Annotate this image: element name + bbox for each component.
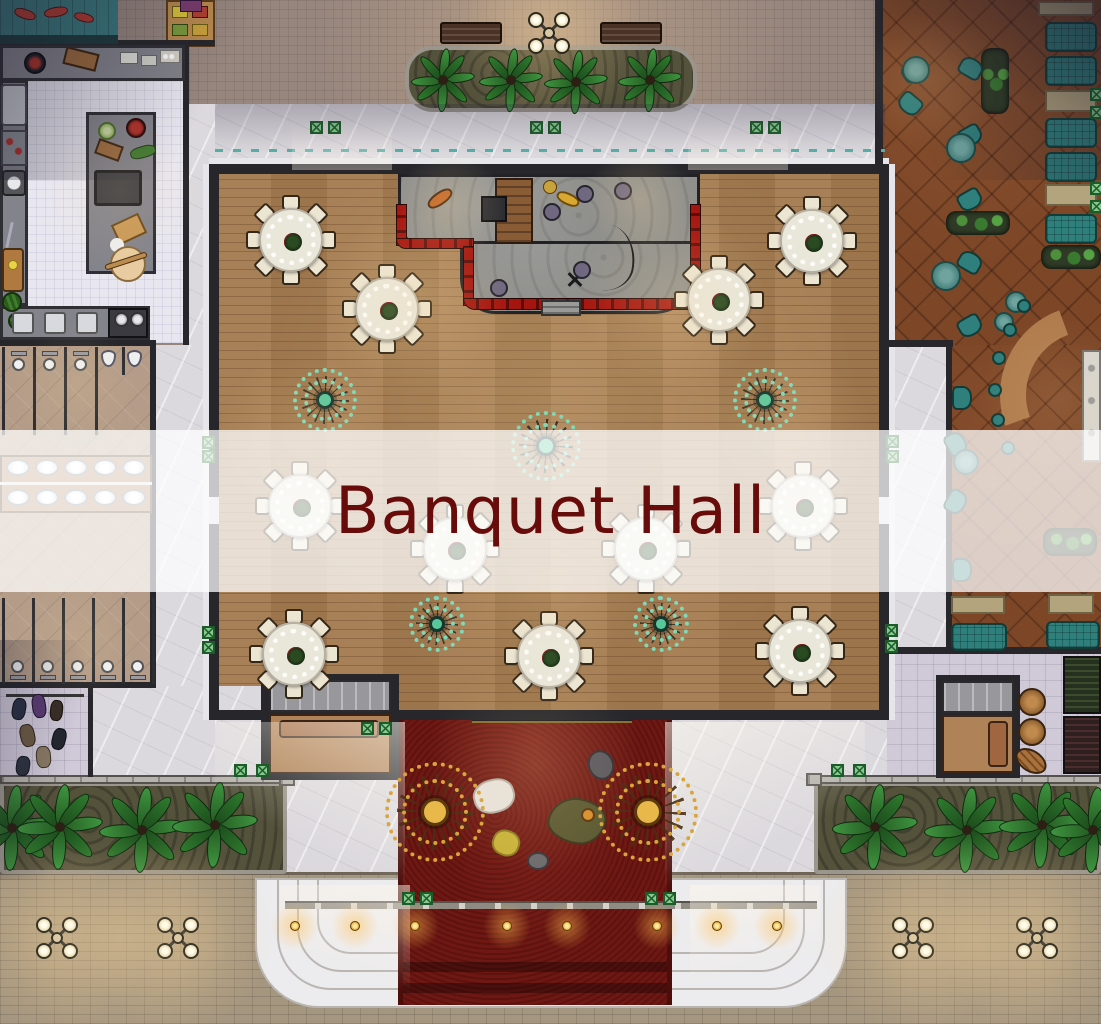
- tabletop: [517, 624, 581, 688]
- gold-medallion: [385, 762, 485, 862]
- patio-round-table: [931, 261, 961, 291]
- patio-planter: [1041, 245, 1101, 269]
- toilet-bowl: [12, 358, 25, 371]
- stall-divider: [32, 598, 35, 684]
- toilet: [42, 351, 58, 372]
- lamp-globe: [183, 917, 199, 933]
- banquet-table: [766, 195, 858, 287]
- barrel: [1018, 718, 1046, 746]
- street-lamp: [1015, 916, 1059, 960]
- palm-tree: [172, 782, 258, 868]
- lamp-globe: [36, 943, 52, 959]
- wall-cloak-right: [88, 688, 93, 777]
- street-lamp: [35, 916, 79, 960]
- side-table: [256, 764, 269, 777]
- toilet-bowl: [74, 358, 87, 371]
- lamp-globe: [1042, 917, 1058, 933]
- side-table: [379, 722, 392, 735]
- tabletop: [355, 277, 419, 341]
- toilet: [11, 351, 27, 372]
- stage-trim: [463, 298, 701, 310]
- sun-lounger: [1045, 118, 1097, 148]
- side-table: [885, 624, 898, 637]
- stall-divider: [92, 598, 95, 684]
- side-table: [645, 892, 658, 905]
- step-lantern: [652, 921, 662, 931]
- lamp-globe: [1016, 943, 1032, 959]
- lobby-cushion-orange: [581, 808, 595, 822]
- carpet-step-shadow: [403, 962, 667, 972]
- wine-rack: [1063, 656, 1101, 714]
- palm-trunk: [645, 75, 655, 85]
- step-lantern: [772, 921, 782, 931]
- toilet-tank: [40, 675, 56, 680]
- patio-sofa: [1046, 621, 1100, 649]
- crate-content: [172, 24, 188, 36]
- lobby-pouf-gray: [527, 852, 549, 870]
- stall-divider: [2, 598, 5, 684]
- palm-trunk: [137, 825, 147, 835]
- palm-tree: [924, 787, 1010, 873]
- banner-overlay: Banquet Hall: [0, 430, 1101, 592]
- palm-tree: [411, 48, 475, 112]
- speaker: [576, 185, 594, 203]
- patio-round-table: [946, 133, 976, 163]
- kitchen-sink: [44, 312, 66, 334]
- centerpiece: [712, 293, 730, 311]
- chandelier-medallion: [633, 596, 689, 652]
- mixer: [2, 170, 26, 196]
- centerpiece: [793, 644, 811, 662]
- side-table: [1090, 200, 1101, 213]
- coat-rack: [6, 694, 84, 697]
- sauce-pot: [126, 118, 146, 138]
- fence-top: [215, 149, 885, 152]
- speaker: [543, 203, 561, 221]
- toilet-tank: [70, 675, 86, 680]
- stall-divider: [122, 598, 125, 684]
- toilet-tank: [11, 351, 27, 356]
- toilet-bowl: [71, 660, 84, 673]
- wall-kitchen-right: [183, 45, 189, 345]
- lamp-globe: [157, 943, 173, 959]
- step-lantern: [502, 921, 512, 931]
- pot: [130, 312, 145, 327]
- side-table: [885, 640, 898, 653]
- lamp-globe: [183, 943, 199, 959]
- stall-divider: [33, 347, 36, 435]
- kitchen-pan: [24, 52, 46, 74]
- lamp-globe: [62, 943, 78, 959]
- patio-table: [1048, 594, 1094, 614]
- side-table: [530, 121, 543, 134]
- palm-trunk: [962, 825, 972, 835]
- flower-display: [180, 0, 202, 12]
- bar-stool: [1003, 323, 1017, 337]
- lemon: [8, 260, 18, 270]
- fridge: [1, 84, 27, 126]
- palm-tree: [17, 784, 103, 870]
- barrel: [1018, 688, 1046, 716]
- crate-content: [192, 24, 208, 36]
- side-table: [202, 641, 215, 654]
- toilet-tank: [73, 351, 89, 356]
- palm-tree: [544, 50, 608, 114]
- side-table: [234, 764, 247, 777]
- lamp-center: [543, 27, 555, 39]
- banquet-table: [503, 610, 595, 702]
- patio-table: [951, 596, 1005, 614]
- step-lantern: [410, 921, 420, 931]
- medallion-core: [429, 616, 445, 632]
- tabletop: [259, 208, 323, 272]
- tabletop: [687, 268, 751, 332]
- tabletop: [780, 209, 844, 273]
- medallion-core: [316, 391, 334, 409]
- side-table: [750, 121, 763, 134]
- sun-lounger: [1045, 56, 1097, 86]
- street-lamp: [156, 916, 200, 960]
- street-lamp: [891, 916, 935, 960]
- banquet-table: [245, 194, 337, 286]
- pot: [114, 312, 129, 327]
- wine-rack: [1063, 716, 1101, 774]
- palm-trunk: [1037, 820, 1047, 830]
- bar-stool: [988, 383, 1002, 397]
- lamp-globe: [157, 917, 173, 933]
- palm-tree: [479, 48, 543, 112]
- palm-trunk: [7, 823, 17, 833]
- cabbage: [98, 122, 116, 140]
- toilet-bowl: [41, 660, 54, 673]
- lamp-globe: [892, 917, 908, 933]
- lamp-globe: [1042, 943, 1058, 959]
- centerpiece: [542, 649, 560, 667]
- gold-medallion: [598, 762, 698, 862]
- side-table: [202, 626, 215, 639]
- lamp-globe: [918, 943, 934, 959]
- lamp-globe: [554, 12, 570, 28]
- armchair: [952, 386, 972, 410]
- bar-stool: [1017, 299, 1031, 313]
- carpet-step-shadow: [403, 983, 667, 993]
- toilet-bowl: [131, 660, 144, 673]
- step-lantern: [290, 921, 300, 931]
- step-lantern: [712, 921, 722, 931]
- palm-trunk: [438, 75, 448, 85]
- medallion-core: [634, 798, 662, 826]
- lamp-center: [1031, 932, 1043, 944]
- lamp-globe: [892, 943, 908, 959]
- toilet-tank: [130, 675, 146, 680]
- toilet-tank: [10, 675, 26, 680]
- banquet-table: [341, 263, 433, 355]
- chandelier-medallion: [409, 596, 465, 652]
- speaker: [614, 182, 632, 200]
- stage-amp: [481, 196, 507, 222]
- speaker: [490, 279, 508, 297]
- sauce-station: [1, 130, 27, 166]
- chandelier-medallion: [733, 368, 797, 432]
- gate-post-right: [806, 773, 822, 786]
- palm-tree: [832, 784, 918, 870]
- centerpiece: [805, 234, 823, 252]
- patio-planter: [981, 48, 1009, 114]
- map-title: Banquet Hall: [335, 474, 766, 549]
- medallion-core: [421, 798, 449, 826]
- side-table: [402, 892, 415, 905]
- medallion-core: [756, 391, 774, 409]
- stage-steps: [541, 300, 581, 316]
- entrance-railing: [285, 901, 817, 909]
- lamp-globe: [918, 917, 934, 933]
- bench: [600, 22, 662, 44]
- side-table: [1090, 88, 1101, 101]
- wall-walkway-divider: [885, 340, 953, 347]
- tabletop: [262, 622, 326, 686]
- patio-planter: [946, 211, 1010, 235]
- kitchen-sink: [76, 312, 98, 334]
- lamp-globe: [36, 917, 52, 933]
- hall-wall-top: [209, 164, 889, 174]
- egg-carton: [160, 50, 180, 63]
- banquet-table: [673, 254, 765, 346]
- palm-trunk: [870, 822, 880, 832]
- side-table: [663, 892, 676, 905]
- kitchen-boxes: [141, 55, 157, 66]
- bar-stool: [991, 413, 1005, 427]
- stall-divider: [64, 347, 67, 435]
- elevator-right-sofa: [988, 721, 1008, 767]
- toilet-tank: [42, 351, 58, 356]
- side-table: [768, 121, 781, 134]
- toilet-bowl: [11, 660, 24, 673]
- toilet-bowl: [43, 358, 56, 371]
- palm-trunk: [210, 820, 220, 830]
- lamp-globe: [62, 917, 78, 933]
- centerpiece: [287, 647, 305, 665]
- centerpiece: [284, 233, 302, 251]
- side-table: [1090, 106, 1101, 119]
- map-canvas: Banquet Hall: [0, 0, 1101, 1024]
- toilet: [100, 659, 116, 680]
- stall-divider: [152, 598, 155, 684]
- toilet: [40, 659, 56, 680]
- coat: [35, 745, 52, 768]
- cymbal: [543, 180, 557, 194]
- side-table: [831, 764, 844, 777]
- stage-trim: [463, 246, 474, 306]
- stall-divider: [62, 598, 65, 684]
- chandelier-medallion: [293, 368, 357, 432]
- tabletop: [768, 619, 832, 683]
- toilet: [73, 351, 89, 372]
- patio-sofa: [951, 623, 1007, 651]
- toilet-tank: [100, 675, 116, 680]
- banquet-table: [754, 605, 846, 697]
- palm-trunk: [1088, 825, 1098, 835]
- palm-trunk: [506, 75, 516, 85]
- market-counter: [0, 35, 118, 44]
- step-lantern: [562, 921, 572, 931]
- baking-tray: [94, 170, 142, 206]
- step-lantern: [350, 921, 360, 931]
- palm-trunk: [571, 77, 581, 87]
- sun-lounger: [1045, 152, 1097, 182]
- side-table: [310, 121, 323, 134]
- stall-divider: [122, 347, 125, 375]
- stairs-right: [942, 681, 1014, 713]
- bench: [440, 22, 502, 44]
- side-table: [420, 892, 433, 905]
- palm-tree: [618, 48, 682, 112]
- banquet-table: [248, 608, 340, 700]
- palm-tree: [1050, 787, 1101, 873]
- lamp-globe: [1016, 917, 1032, 933]
- medallion-core: [653, 616, 669, 632]
- watermelon: [2, 292, 22, 312]
- side-table: [548, 121, 561, 134]
- sun-lounger: [1045, 22, 1097, 52]
- side-table: [1090, 182, 1101, 195]
- centerpiece: [380, 302, 398, 320]
- lamp-center: [907, 932, 919, 944]
- patio-table: [1038, 1, 1094, 16]
- side-table: [853, 764, 866, 777]
- kitchen-boxes: [120, 52, 138, 64]
- palm-trunk: [55, 822, 65, 832]
- side-table: [361, 722, 374, 735]
- sun-lounger: [1045, 214, 1097, 244]
- lamp-center: [172, 932, 184, 944]
- bar-stool: [992, 351, 1006, 365]
- wall-kitchen-bath: [0, 340, 156, 346]
- patio-round-table: [902, 56, 930, 84]
- stall-divider: [2, 347, 5, 435]
- toilet: [70, 659, 86, 680]
- toilet: [130, 659, 146, 680]
- stall-divider: [95, 347, 98, 435]
- speaker: [573, 261, 591, 279]
- lamp-globe: [528, 12, 544, 28]
- toilet-bowl: [101, 660, 114, 673]
- wall-patio-top-left: [875, 0, 883, 164]
- lamp-center: [51, 932, 63, 944]
- cutting-board: [2, 248, 24, 292]
- side-table: [328, 121, 341, 134]
- toilet: [10, 659, 26, 680]
- kitchen-sink: [12, 312, 34, 334]
